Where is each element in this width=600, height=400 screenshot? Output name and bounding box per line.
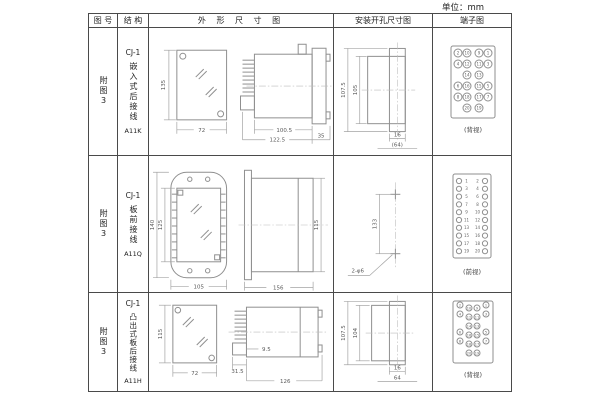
svg-text:4: 4 [459,312,462,316]
svg-text:6: 6 [476,194,479,199]
svg-text:104: 104 [353,327,359,338]
svg-text:17: 17 [475,342,479,346]
terminal-diagram-rear-a11k: 2109141211314136161558181772019(背视) [433,28,511,156]
unit-label: 单位：mm [88,1,510,13]
structure-cell-3: CJ-1 凸出式板后接线 A11H [118,293,149,391]
svg-text:16: 16 [464,83,470,88]
outline-drawing-cell-3: 115 72 9.5 31.5 126 [149,293,334,391]
svg-text:140: 140 [150,219,156,230]
terminal-drawing-cell-1: 2109141211314136161558181772019(背视) [433,28,511,156]
fig-no-cell-2: 附图3 [89,156,118,293]
terminal-diagram-front-a11q: 1234567891011121314151617181920(前视) [433,156,511,293]
fig-no-label-1: 附图3 [99,76,107,107]
svg-text:2: 2 [459,303,461,307]
fig-no-cell-1: 附图3 [89,28,118,156]
outline-drawing-a11q: 140 125 105 115 156 [149,156,333,293]
svg-text:5: 5 [487,83,490,88]
svg-text:64: 64 [394,376,401,382]
svg-text:107.5: 107.5 [341,82,347,98]
col-header-terminal: 端子图 [433,14,511,28]
svg-text:(64): (64) [392,142,403,148]
svg-text:18: 18 [467,342,471,346]
structure-cell-2: CJ-1 板前接线 A11Q [118,156,149,293]
svg-text:5: 5 [465,194,468,199]
structure-cell-1: CJ-1 嵌入式后接线 A11K [118,28,149,156]
svg-text:4: 4 [476,186,479,191]
svg-text:1: 1 [485,303,487,307]
svg-text:125: 125 [158,219,164,229]
structure-label-1: 嵌入式后接线 [129,62,137,122]
svg-text:19: 19 [476,105,482,110]
spec-table: 图 号 结 构 外 形 尺 寸 图 安装开孔尺寸图 端子图 附图3 CJ-1 嵌… [88,13,512,392]
svg-text:(前视): (前视) [463,267,481,276]
svg-text:35: 35 [318,133,325,139]
svg-text:16: 16 [467,333,471,337]
svg-text:11: 11 [475,315,479,319]
install-drawing-cell-3: 107.5 104 16 64 [334,293,433,391]
model-label-3: CJ-1 [126,299,141,308]
svg-text:2: 2 [476,178,479,183]
svg-text:1: 1 [487,50,490,55]
outline-drawing-cell-2: 140 125 105 115 156 [149,156,334,293]
svg-text:14: 14 [475,225,481,230]
terminal-diagram-rear-a11h: 2109141211314136161558181772019(背视) [433,293,511,391]
svg-text:10: 10 [467,306,471,310]
svg-text:100.5: 100.5 [276,127,292,133]
svg-text:72: 72 [191,371,198,377]
svg-text:10: 10 [475,209,481,214]
svg-text:115: 115 [158,329,164,339]
col-header-structure: 结 构 [118,14,149,28]
svg-text:19: 19 [464,248,470,253]
svg-text:2: 2 [457,50,460,55]
svg-text:8: 8 [457,94,460,99]
svg-text:16: 16 [475,233,481,238]
install-drawing-a11h: 107.5 104 16 64 [334,293,432,391]
type-code-2: A11Q [124,250,142,258]
svg-text:7: 7 [485,339,487,343]
svg-text:15: 15 [475,333,479,337]
svg-text:12: 12 [475,217,481,222]
install-drawing-a11q: 133 2-φ6 [334,156,432,293]
svg-text:18: 18 [475,240,481,245]
col-header-install: 安装开孔尺寸图 [334,14,433,28]
outline-drawing-cell-1: 135 72 100.5 122.5 35 [149,28,334,156]
svg-text:9.5: 9.5 [262,347,271,353]
svg-text:31.5: 31.5 [231,369,243,375]
svg-text:115: 115 [314,219,320,229]
svg-text:(背视): (背视) [464,370,482,379]
structure-label-3: 凸出式板后接线 [129,313,137,373]
svg-text:11: 11 [464,217,470,222]
svg-text:72: 72 [198,127,205,133]
terminal-drawing-cell-3: 2109141211314136161558181772019(背视) [433,293,511,391]
svg-text:135: 135 [161,79,167,89]
svg-text:7: 7 [465,201,468,206]
svg-text:2-φ6: 2-φ6 [352,268,365,274]
terminal-drawing-cell-2: 1234567891011121314151617181920(前视) [433,156,511,293]
svg-text:18: 18 [464,94,470,99]
outline-drawing-a11k: 135 72 100.5 122.5 35 [149,28,333,156]
fig-no-cell-3: 附图3 [89,293,118,391]
svg-text:13: 13 [475,324,479,328]
svg-text:105: 105 [353,84,359,94]
svg-text:107.5: 107.5 [341,325,347,341]
svg-text:11: 11 [476,61,482,66]
svg-text:9: 9 [465,209,468,214]
svg-text:1: 1 [465,178,468,183]
svg-text:14: 14 [464,72,470,77]
model-label-2: CJ-1 [126,191,141,200]
svg-text:13: 13 [476,72,482,77]
svg-text:12: 12 [467,315,471,319]
svg-text:3: 3 [465,186,468,191]
svg-text:10: 10 [464,50,470,55]
install-drawing-a11k: 107.5 105 16 (64) [334,28,432,156]
svg-text:15: 15 [464,233,470,238]
svg-text:15: 15 [476,83,482,88]
svg-text:17: 17 [476,94,482,99]
svg-text:13: 13 [464,225,470,230]
svg-text:3: 3 [487,61,490,66]
svg-text:(背视): (背视) [464,125,482,134]
svg-text:14: 14 [467,324,472,328]
svg-text:122.5: 122.5 [269,137,285,143]
svg-text:126: 126 [280,379,291,385]
svg-text:16: 16 [394,366,401,372]
svg-text:6: 6 [457,83,460,88]
type-code-3: A11H [124,377,142,385]
install-drawing-cell-2: 133 2-φ6 [334,156,433,293]
svg-text:5: 5 [485,330,487,334]
svg-text:9: 9 [476,306,478,310]
svg-text:4: 4 [457,61,460,66]
svg-text:16: 16 [394,132,401,138]
svg-text:17: 17 [464,240,470,245]
svg-text:12: 12 [464,61,470,66]
svg-text:156: 156 [273,285,284,291]
svg-text:7: 7 [487,94,490,99]
svg-text:3: 3 [485,312,487,316]
svg-text:20: 20 [475,248,481,253]
svg-text:8: 8 [476,201,479,206]
col-header-outline: 外 形 尺 寸 图 [149,14,334,28]
svg-text:6: 6 [459,330,461,334]
fig-no-label-3: 附图3 [99,327,107,358]
svg-text:20: 20 [467,351,471,355]
model-label-1: CJ-1 [126,48,141,57]
svg-text:9: 9 [478,50,481,55]
type-code-1: A11K [125,127,142,135]
svg-text:105: 105 [194,284,204,290]
svg-text:19: 19 [475,351,479,355]
svg-text:133: 133 [373,218,379,229]
col-header-fig-no: 图 号 [89,14,118,28]
structure-label-2: 板前接线 [129,205,137,245]
fig-no-label-2: 附图3 [99,209,107,240]
outline-drawing-a11h: 115 72 9.5 31.5 126 [149,293,333,391]
install-drawing-cell-1: 107.5 105 16 (64) [334,28,433,156]
svg-text:20: 20 [464,105,470,110]
svg-text:8: 8 [459,339,461,343]
